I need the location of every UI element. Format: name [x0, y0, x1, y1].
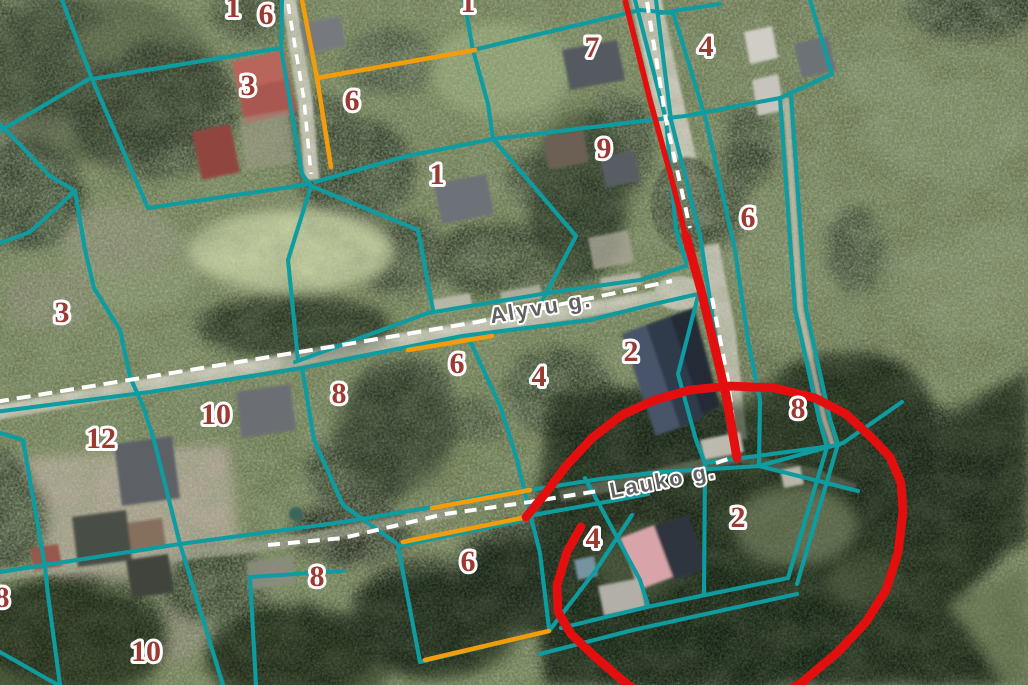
svg-text:4: 4	[586, 522, 601, 555]
svg-text:10: 10	[201, 398, 231, 431]
svg-text:1: 1	[226, 0, 241, 24]
svg-text:1: 1	[430, 158, 445, 191]
svg-text:6: 6	[259, 0, 274, 31]
svg-text:12: 12	[86, 422, 116, 455]
svg-text:6: 6	[450, 347, 465, 380]
svg-text:4: 4	[532, 360, 547, 393]
svg-text:3: 3	[55, 296, 70, 329]
svg-text:9: 9	[597, 132, 612, 165]
svg-text:8: 8	[332, 377, 347, 410]
svg-text:8: 8	[310, 560, 325, 593]
svg-text:2: 2	[731, 501, 746, 534]
svg-text:4: 4	[699, 30, 714, 63]
svg-text:6: 6	[741, 201, 756, 234]
svg-text:3: 3	[241, 69, 256, 102]
svg-text:7: 7	[585, 31, 600, 64]
svg-text:6: 6	[345, 84, 360, 117]
svg-text:10: 10	[131, 635, 161, 668]
svg-text:8: 8	[791, 392, 806, 425]
svg-text:2: 2	[624, 335, 639, 368]
svg-text:6: 6	[461, 545, 476, 578]
svg-text:8: 8	[0, 581, 10, 614]
svg-text:1: 1	[461, 0, 476, 19]
